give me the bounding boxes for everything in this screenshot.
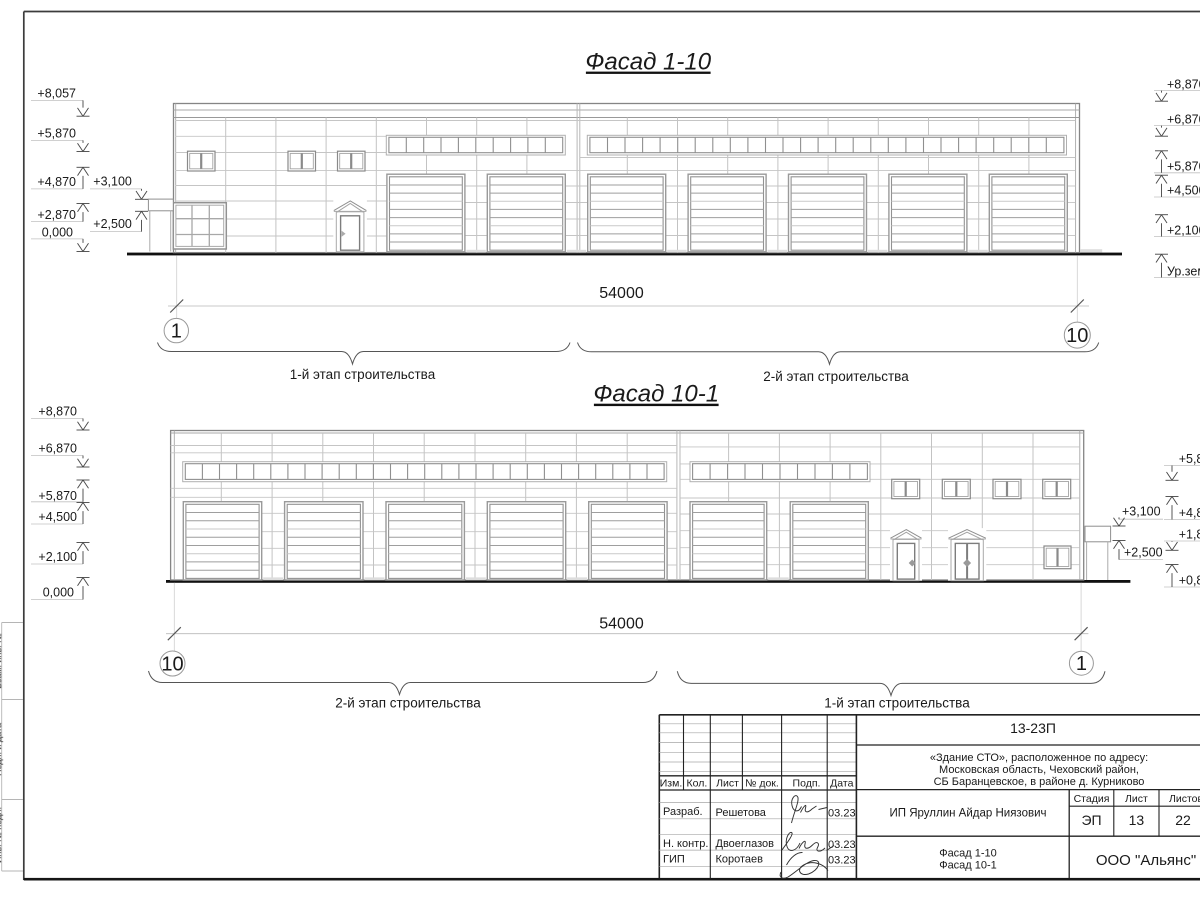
svg-text:Лист: Лист [716,778,739,790]
svg-text:Н. контр.: Н. контр. [663,838,708,850]
svg-text:0,000: 0,000 [42,226,73,240]
svg-text:0,000: 0,000 [43,586,74,600]
svg-text:Разраб.: Разраб. [663,806,703,818]
svg-text:54000: 54000 [599,615,644,632]
svg-text:Московская область, Чеховский: Московская область, Чеховский район, [939,764,1139,776]
svg-text:2-й этап строительства: 2-й этап строительства [335,695,481,710]
svg-text:+2,500: +2,500 [93,217,132,231]
svg-text:«Здание СТО», расположенное по: «Здание СТО», расположенное по адресу: [930,752,1148,764]
svg-text:1-й этап строительства: 1-й этап строительства [290,367,436,382]
svg-text:Лист: Лист [1125,793,1148,805]
svg-text:+2,100: +2,100 [1167,224,1200,238]
svg-text:+4,870: +4,870 [1179,506,1200,520]
svg-text:+3,100: +3,100 [1122,505,1161,519]
svg-text:Кол.: Кол. [687,778,708,790]
svg-text:2-й этап строительства: 2-й этап строительства [763,369,909,384]
svg-text:10: 10 [161,654,183,676]
svg-text:Дата: Дата [830,778,853,790]
svg-text:03.23: 03.23 [828,808,856,820]
svg-text:10: 10 [1066,325,1088,347]
svg-text:1: 1 [1076,653,1087,675]
svg-text:Взам. инв. №: Взам. инв. № [0,633,3,689]
svg-text:Фасад 1-10: Фасад 1-10 [939,847,997,859]
svg-text:Подп.: Подп. [793,778,821,790]
svg-text:ЭП: ЭП [1081,812,1101,828]
svg-text:Стадия: Стадия [1074,793,1110,805]
svg-text:+6,870: +6,870 [1167,113,1200,127]
svg-text:Коротаев: Коротаев [716,854,764,866]
svg-text:+8,057: +8,057 [37,87,76,101]
svg-text:Фасад 10-1: Фасад 10-1 [939,859,997,871]
svg-text:№ док.: № док. [745,778,779,790]
svg-text:03.23: 03.23 [828,855,856,867]
svg-text:+5,870: +5,870 [1179,452,1200,466]
svg-text:ИП Яруллин Айдар Ниязович: ИП Яруллин Айдар Ниязович [890,808,1047,820]
svg-text:ГИП: ГИП [663,854,685,866]
svg-text:+4,500: +4,500 [1167,184,1200,198]
svg-text:Фасад 10-1: Фасад 10-1 [593,381,719,408]
svg-text:1: 1 [171,321,182,343]
svg-text:+2,100: +2,100 [38,550,77,564]
svg-text:+4,870: +4,870 [37,175,76,189]
svg-text:22: 22 [1175,812,1191,828]
svg-text:+5,870: +5,870 [1167,160,1200,174]
svg-text:+3,100: +3,100 [93,174,132,188]
svg-text:+5,870: +5,870 [38,489,77,503]
svg-text:+5,870: +5,870 [37,127,76,141]
svg-text:Решетова: Решетова [716,807,767,819]
svg-text:+2,870: +2,870 [37,208,76,222]
svg-text:54000: 54000 [599,285,644,302]
svg-text:Подп. и дата: Подп. и дата [0,723,3,776]
svg-text:+1,870: +1,870 [1179,528,1200,542]
svg-text:+4,500: +4,500 [38,510,77,524]
svg-text:Ур.земли: Ур.земли [1167,265,1200,279]
svg-text:+0,870: +0,870 [1179,574,1200,588]
svg-text:Фасад 1-10: Фасад 1-10 [585,49,711,76]
svg-text:+2,500: +2,500 [1124,546,1163,560]
svg-text:13-23П: 13-23П [1010,720,1056,736]
svg-text:Инв. № подл.: Инв. № подл. [0,807,3,863]
svg-text:СБ Баранцевское, в районе д. К: СБ Баранцевское, в районе д. Курниково [934,776,1145,788]
svg-text:ООО "Альянс": ООО "Альянс" [1096,852,1196,869]
svg-text:+8,870: +8,870 [1167,78,1200,92]
svg-text:Листов: Листов [1169,793,1200,805]
svg-text:Двоеглазов: Двоеглазов [716,838,775,850]
svg-text:+6,870: +6,870 [38,442,77,456]
svg-text:Изм.: Изм. [660,778,683,790]
svg-text:03.23: 03.23 [828,839,856,851]
svg-text:1-й этап строительства: 1-й этап строительства [824,695,970,710]
svg-text:13: 13 [1129,812,1145,828]
svg-text:+8,870: +8,870 [38,405,77,419]
